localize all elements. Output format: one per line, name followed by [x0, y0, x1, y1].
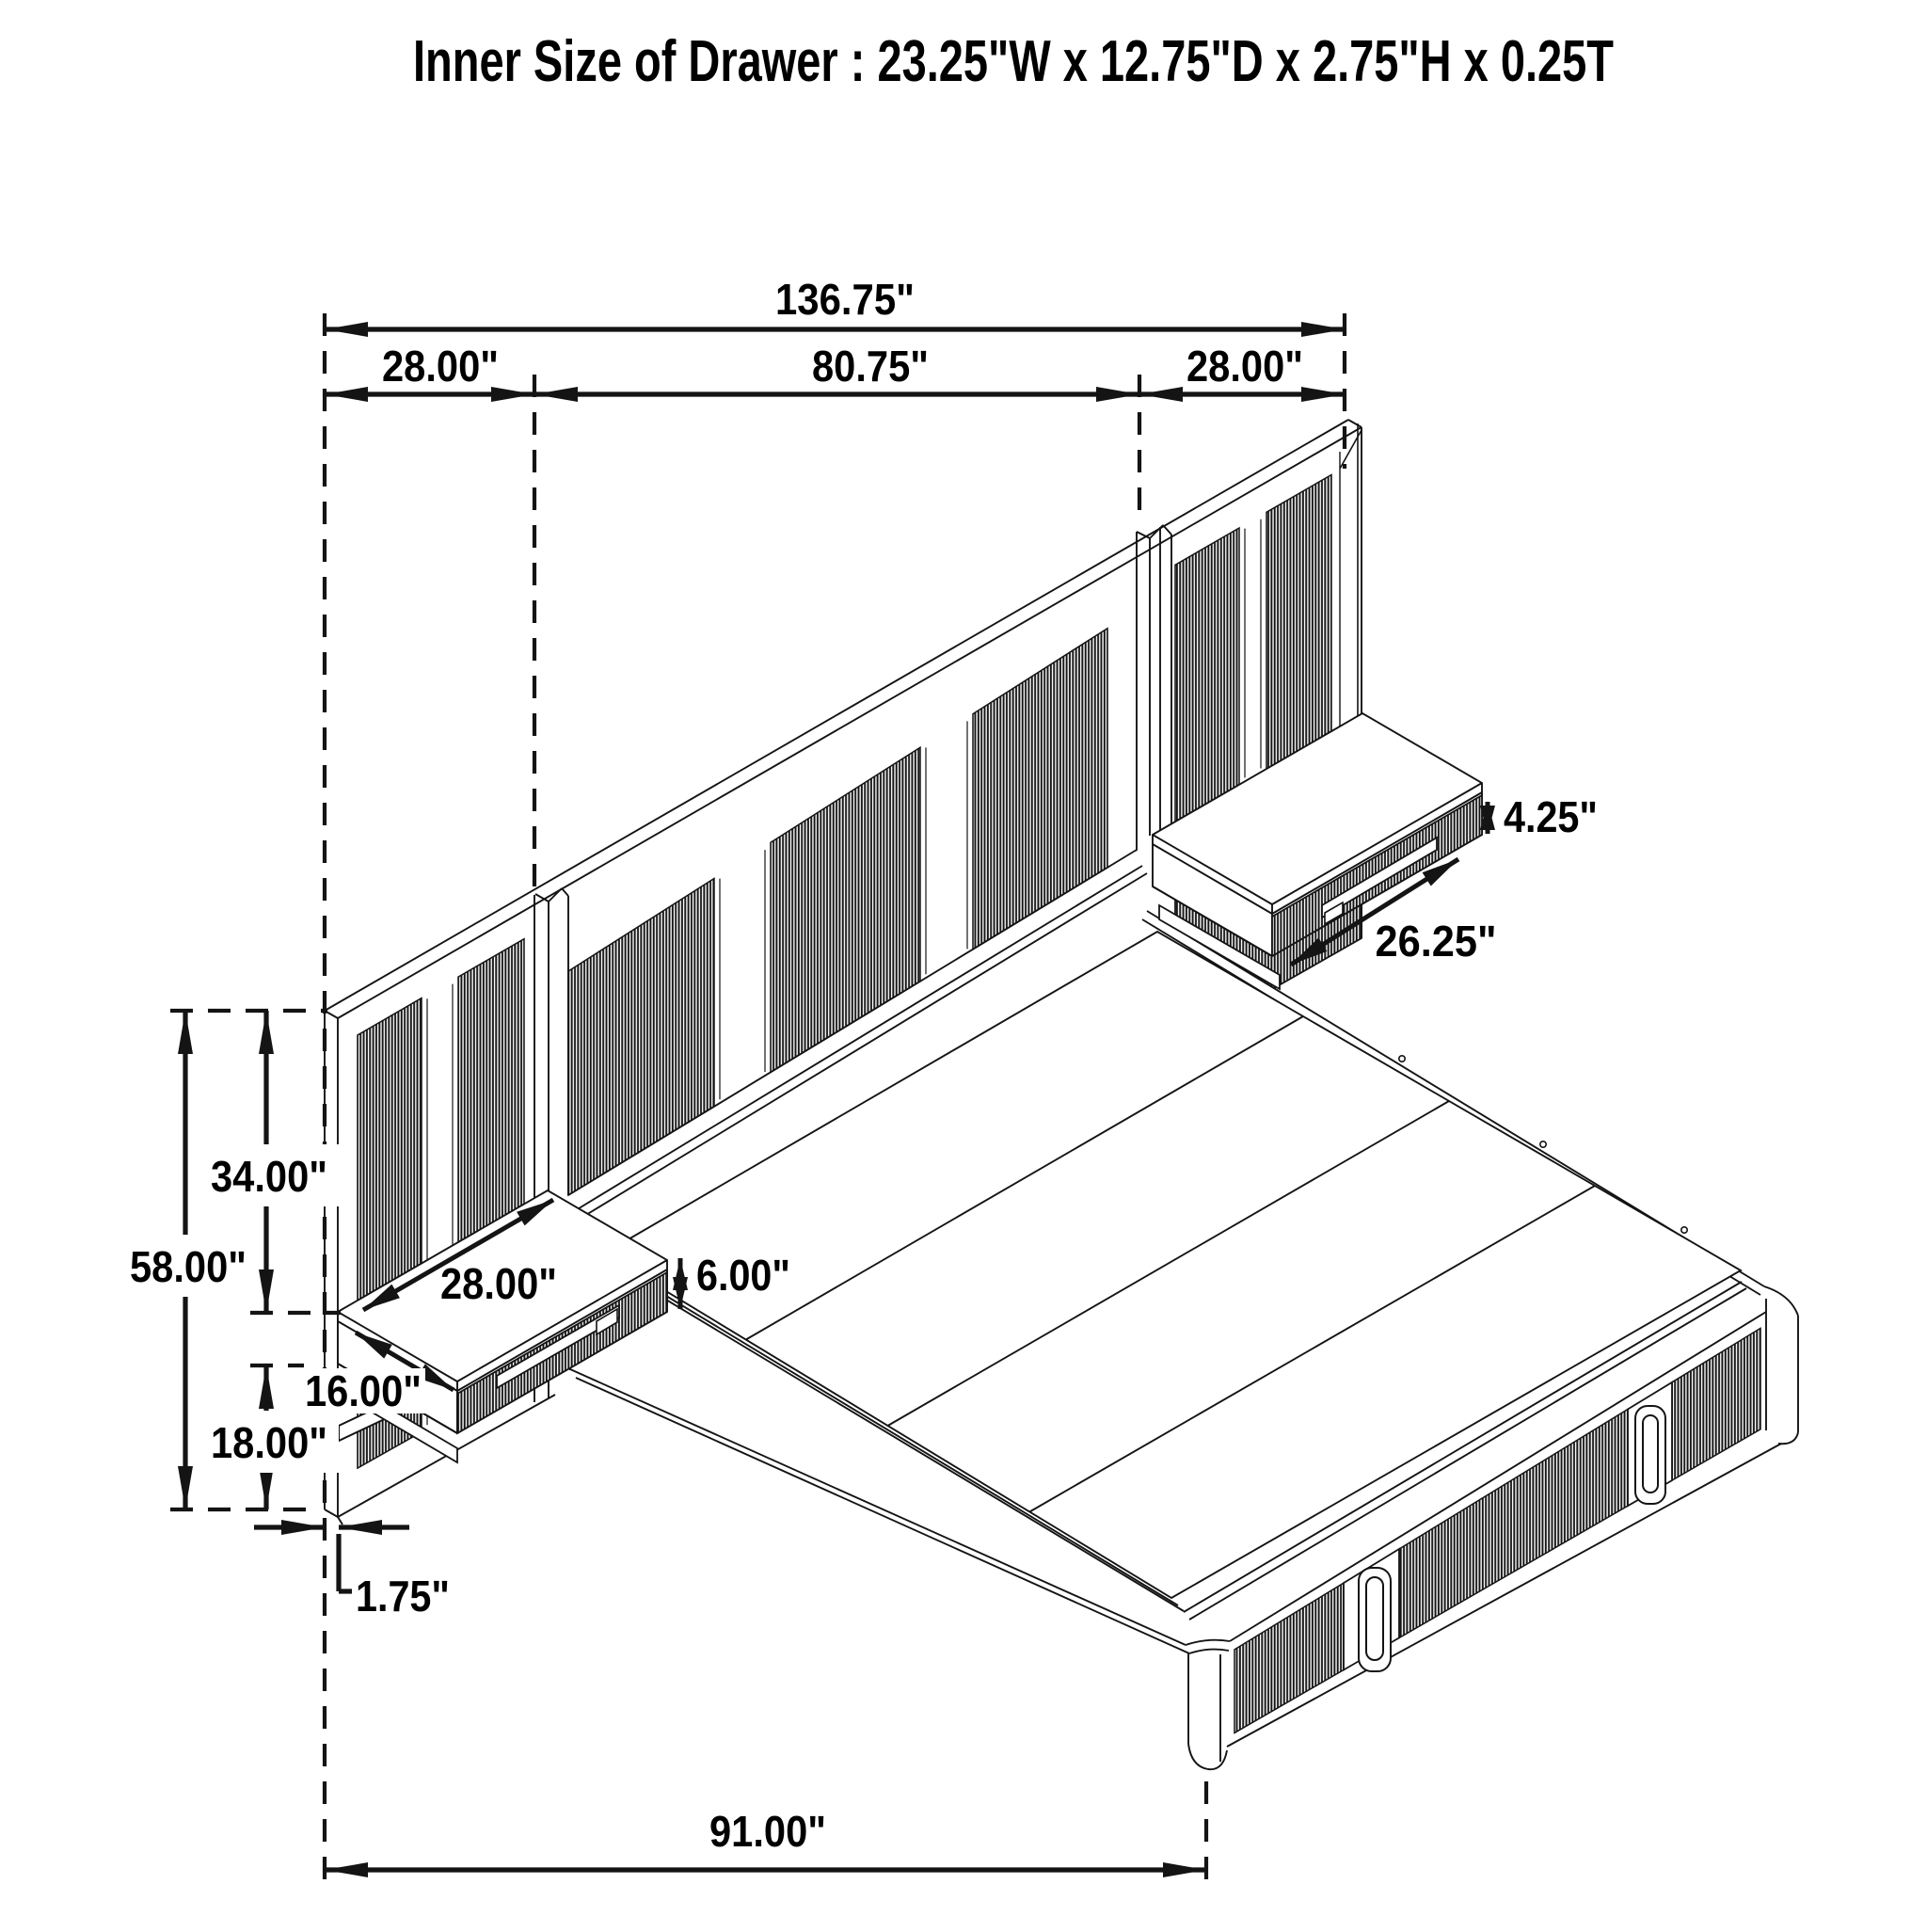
svg-text:28.00": 28.00": [1186, 342, 1303, 391]
svg-text:80.75": 80.75": [812, 342, 929, 391]
svg-text:136.75": 136.75": [775, 275, 915, 324]
svg-text:6.00": 6.00": [696, 1251, 790, 1300]
svg-text:91.00": 91.00": [709, 1807, 826, 1856]
svg-text:28.00": 28.00": [440, 1259, 557, 1308]
svg-text:28.00": 28.00": [382, 342, 499, 391]
svg-text:16.00": 16.00": [305, 1366, 422, 1415]
svg-text:1.75": 1.75": [356, 1572, 450, 1621]
svg-text:4.25": 4.25": [1504, 792, 1598, 841]
svg-text:26.25": 26.25": [1376, 917, 1497, 966]
svg-text:Inner Size of Drawer : 23.25"W: Inner Size of Drawer : 23.25"W x 12.75"D…: [413, 29, 1614, 94]
svg-text:18.00": 18.00": [211, 1418, 327, 1467]
svg-text:34.00": 34.00": [211, 1152, 327, 1201]
svg-text:58.00": 58.00": [130, 1242, 247, 1291]
